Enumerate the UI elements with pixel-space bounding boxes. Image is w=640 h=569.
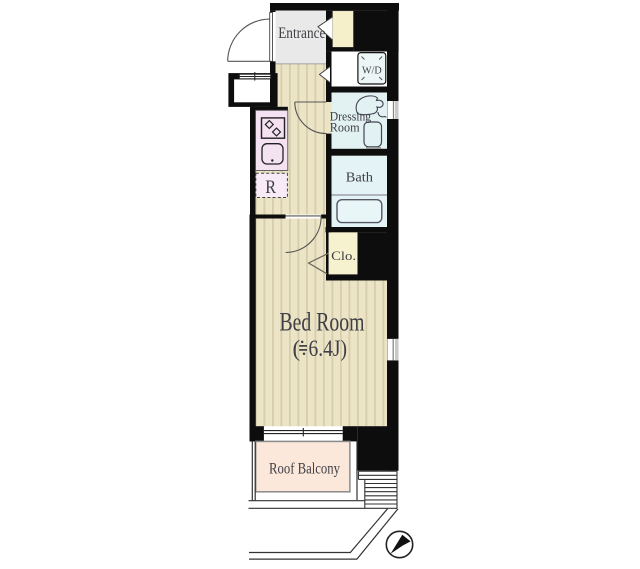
svg-text:(: (: [293, 336, 301, 361]
svg-text:Room: Room: [330, 120, 360, 134]
svg-text:W/D: W/D: [362, 64, 382, 76]
svg-text:Bed Room: Bed Room: [280, 308, 365, 337]
svg-text:Bath: Bath: [346, 169, 374, 184]
svg-text:Clo.: Clo.: [331, 248, 356, 263]
svg-text:R: R: [265, 177, 276, 198]
svg-text:6.4J): 6.4J): [309, 336, 348, 361]
svg-text:Roof Balcony: Roof Balcony: [269, 461, 340, 478]
svg-text:Entrance: Entrance: [278, 25, 325, 42]
